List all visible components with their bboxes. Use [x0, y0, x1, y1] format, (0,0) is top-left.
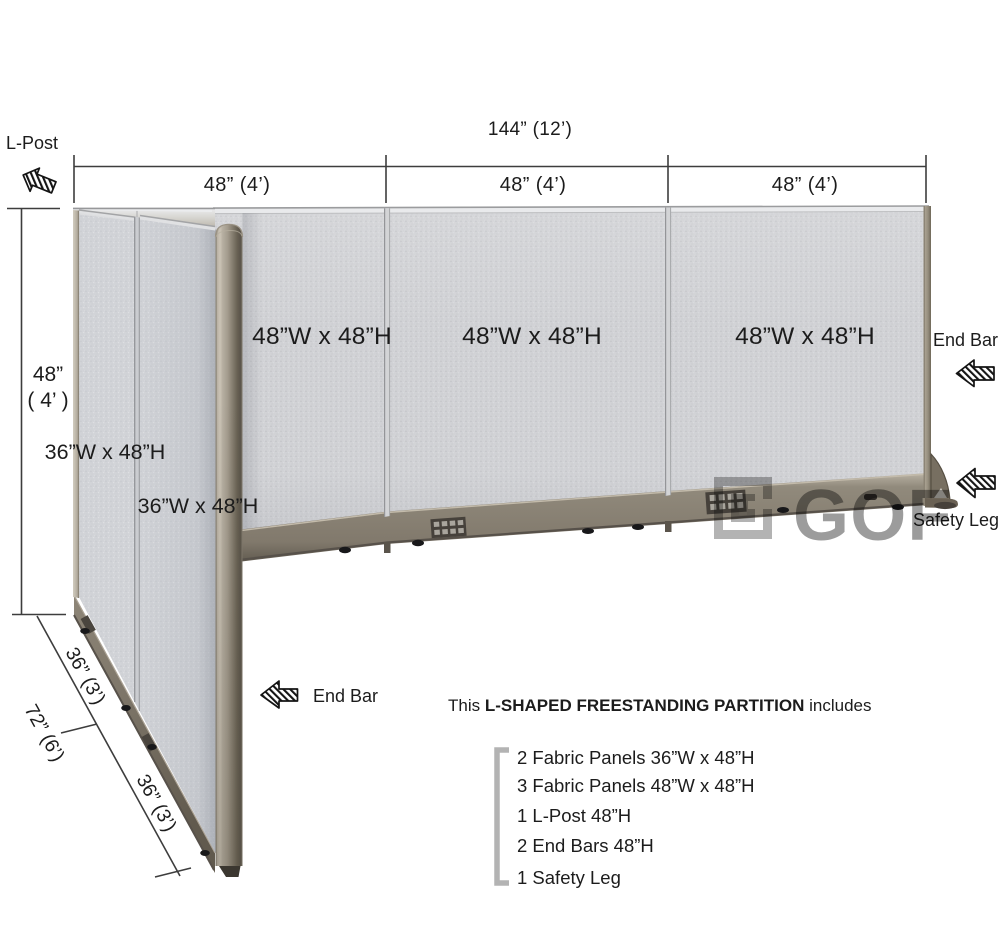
svg-text:48” (4’): 48” (4’)	[204, 174, 271, 196]
svg-text:48”W x 48”H: 48”W x 48”H	[735, 323, 875, 350]
svg-text:48”: 48”	[33, 363, 63, 386]
svg-text:48” (4’): 48” (4’)	[500, 174, 567, 196]
svg-text:36”W x 48”H: 36”W x 48”H	[138, 494, 259, 518]
svg-text:2 End Bars 48”H: 2 End Bars 48”H	[517, 835, 654, 856]
svg-text:1 Safety Leg: 1 Safety Leg	[517, 867, 621, 888]
svg-text:End Bar: End Bar	[933, 330, 998, 350]
svg-text:This L-SHAPED FREESTANDING PAR: This L-SHAPED FREESTANDING PARTITION inc…	[448, 696, 872, 715]
svg-text:36”W x 48”H: 36”W x 48”H	[45, 440, 166, 464]
svg-text:2 Fabric Panels 36”W x 48”H: 2 Fabric Panels 36”W x 48”H	[517, 747, 755, 768]
svg-text:L-Post: L-Post	[6, 133, 58, 153]
svg-text:3 Fabric Panels 48”W x 48”H: 3 Fabric Panels 48”W x 48”H	[517, 775, 755, 796]
svg-text:48”W x 48”H: 48”W x 48”H	[462, 323, 602, 350]
svg-text:144” (12’): 144” (12’)	[488, 119, 572, 140]
svg-text:48” (4’): 48” (4’)	[772, 174, 839, 196]
svg-text:48”W x 48”H: 48”W x 48”H	[252, 323, 392, 350]
svg-text:GOF: GOF	[793, 476, 953, 556]
svg-text:End Bar: End Bar	[313, 686, 378, 706]
svg-text:( 4’ ): ( 4’ )	[27, 389, 68, 412]
svg-text:1 L-Post 48”H: 1 L-Post 48”H	[517, 805, 631, 826]
